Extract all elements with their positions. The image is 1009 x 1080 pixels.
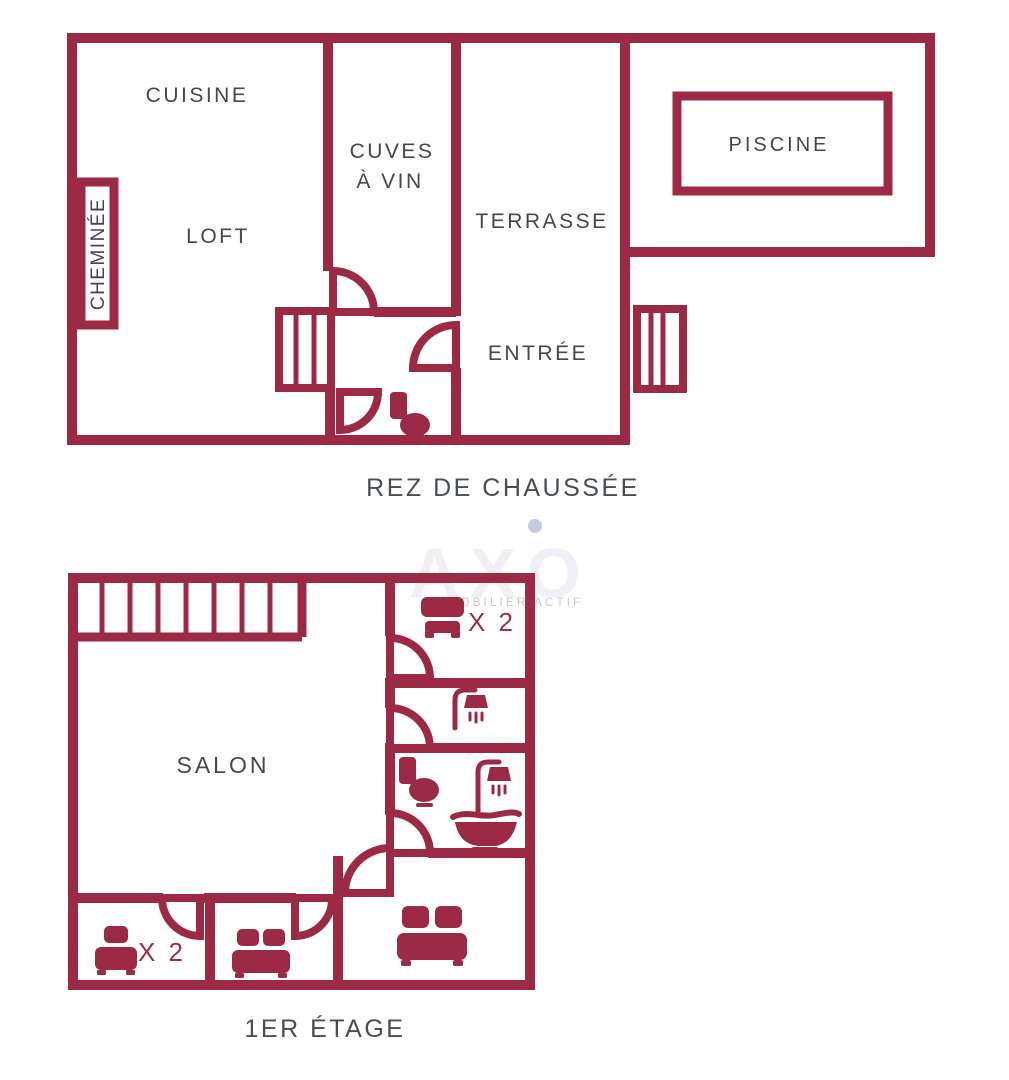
bed-multiplier-top: X 2 (468, 607, 516, 637)
room-label-cuisine: CUISINE (146, 84, 249, 107)
room-label-terrasse: TERRASSE (475, 210, 608, 233)
room-label-loft: LOFT (186, 225, 250, 248)
single-bed-icon (95, 926, 137, 975)
bathtub-icon (453, 812, 519, 851)
door-arc (390, 708, 430, 748)
double-bed-icon (397, 906, 467, 966)
room-label-cuves-1: CUVES (350, 140, 435, 163)
door-arc (413, 325, 456, 368)
first-floor-caption: 1ER ÉTAGE (245, 1014, 406, 1043)
ground-floor-caption: REZ DE CHAUSSÉE (366, 473, 640, 502)
single-bed-icon (421, 597, 464, 638)
ground-floor: CUISINE LOFT CUVES À VIN TERRASSE ENTRÉE… (72, 38, 930, 502)
door-arc (162, 898, 200, 936)
door-arc (390, 638, 430, 678)
window-symbol (279, 311, 331, 388)
room-label-cheminee: CHEMINÉE (88, 198, 109, 310)
room-label-piscine: PISCINE (728, 134, 829, 156)
shower-icon (478, 762, 511, 813)
first-floor: SALON X 2 X 2 1ER ÉTAGE (72, 578, 530, 1043)
interior-walls (328, 38, 456, 440)
floor-plan: AXO IMMOBILIER ACTIF (0, 0, 1009, 1080)
shower-icon (455, 690, 488, 728)
stairs (72, 580, 302, 637)
toilet-icon (399, 757, 439, 807)
door-arc (390, 813, 430, 853)
floor-plan-page: AXO IMMOBILIER ACTIF (0, 0, 1009, 1080)
bed-multiplier-left: X 2 (138, 937, 186, 967)
door-arc (333, 271, 374, 312)
double-bed-icon (232, 929, 290, 978)
watermark-dot-icon (528, 519, 542, 533)
door-arc (295, 898, 332, 936)
room-label-entree: ENTRÉE (488, 342, 588, 365)
door-arc (340, 392, 378, 430)
window-symbol (637, 309, 683, 389)
room-label-salon: SALON (177, 752, 270, 778)
room-label-cuves-2: À VIN (356, 170, 423, 193)
door-arc (345, 848, 390, 893)
toilet-icon (390, 392, 430, 442)
